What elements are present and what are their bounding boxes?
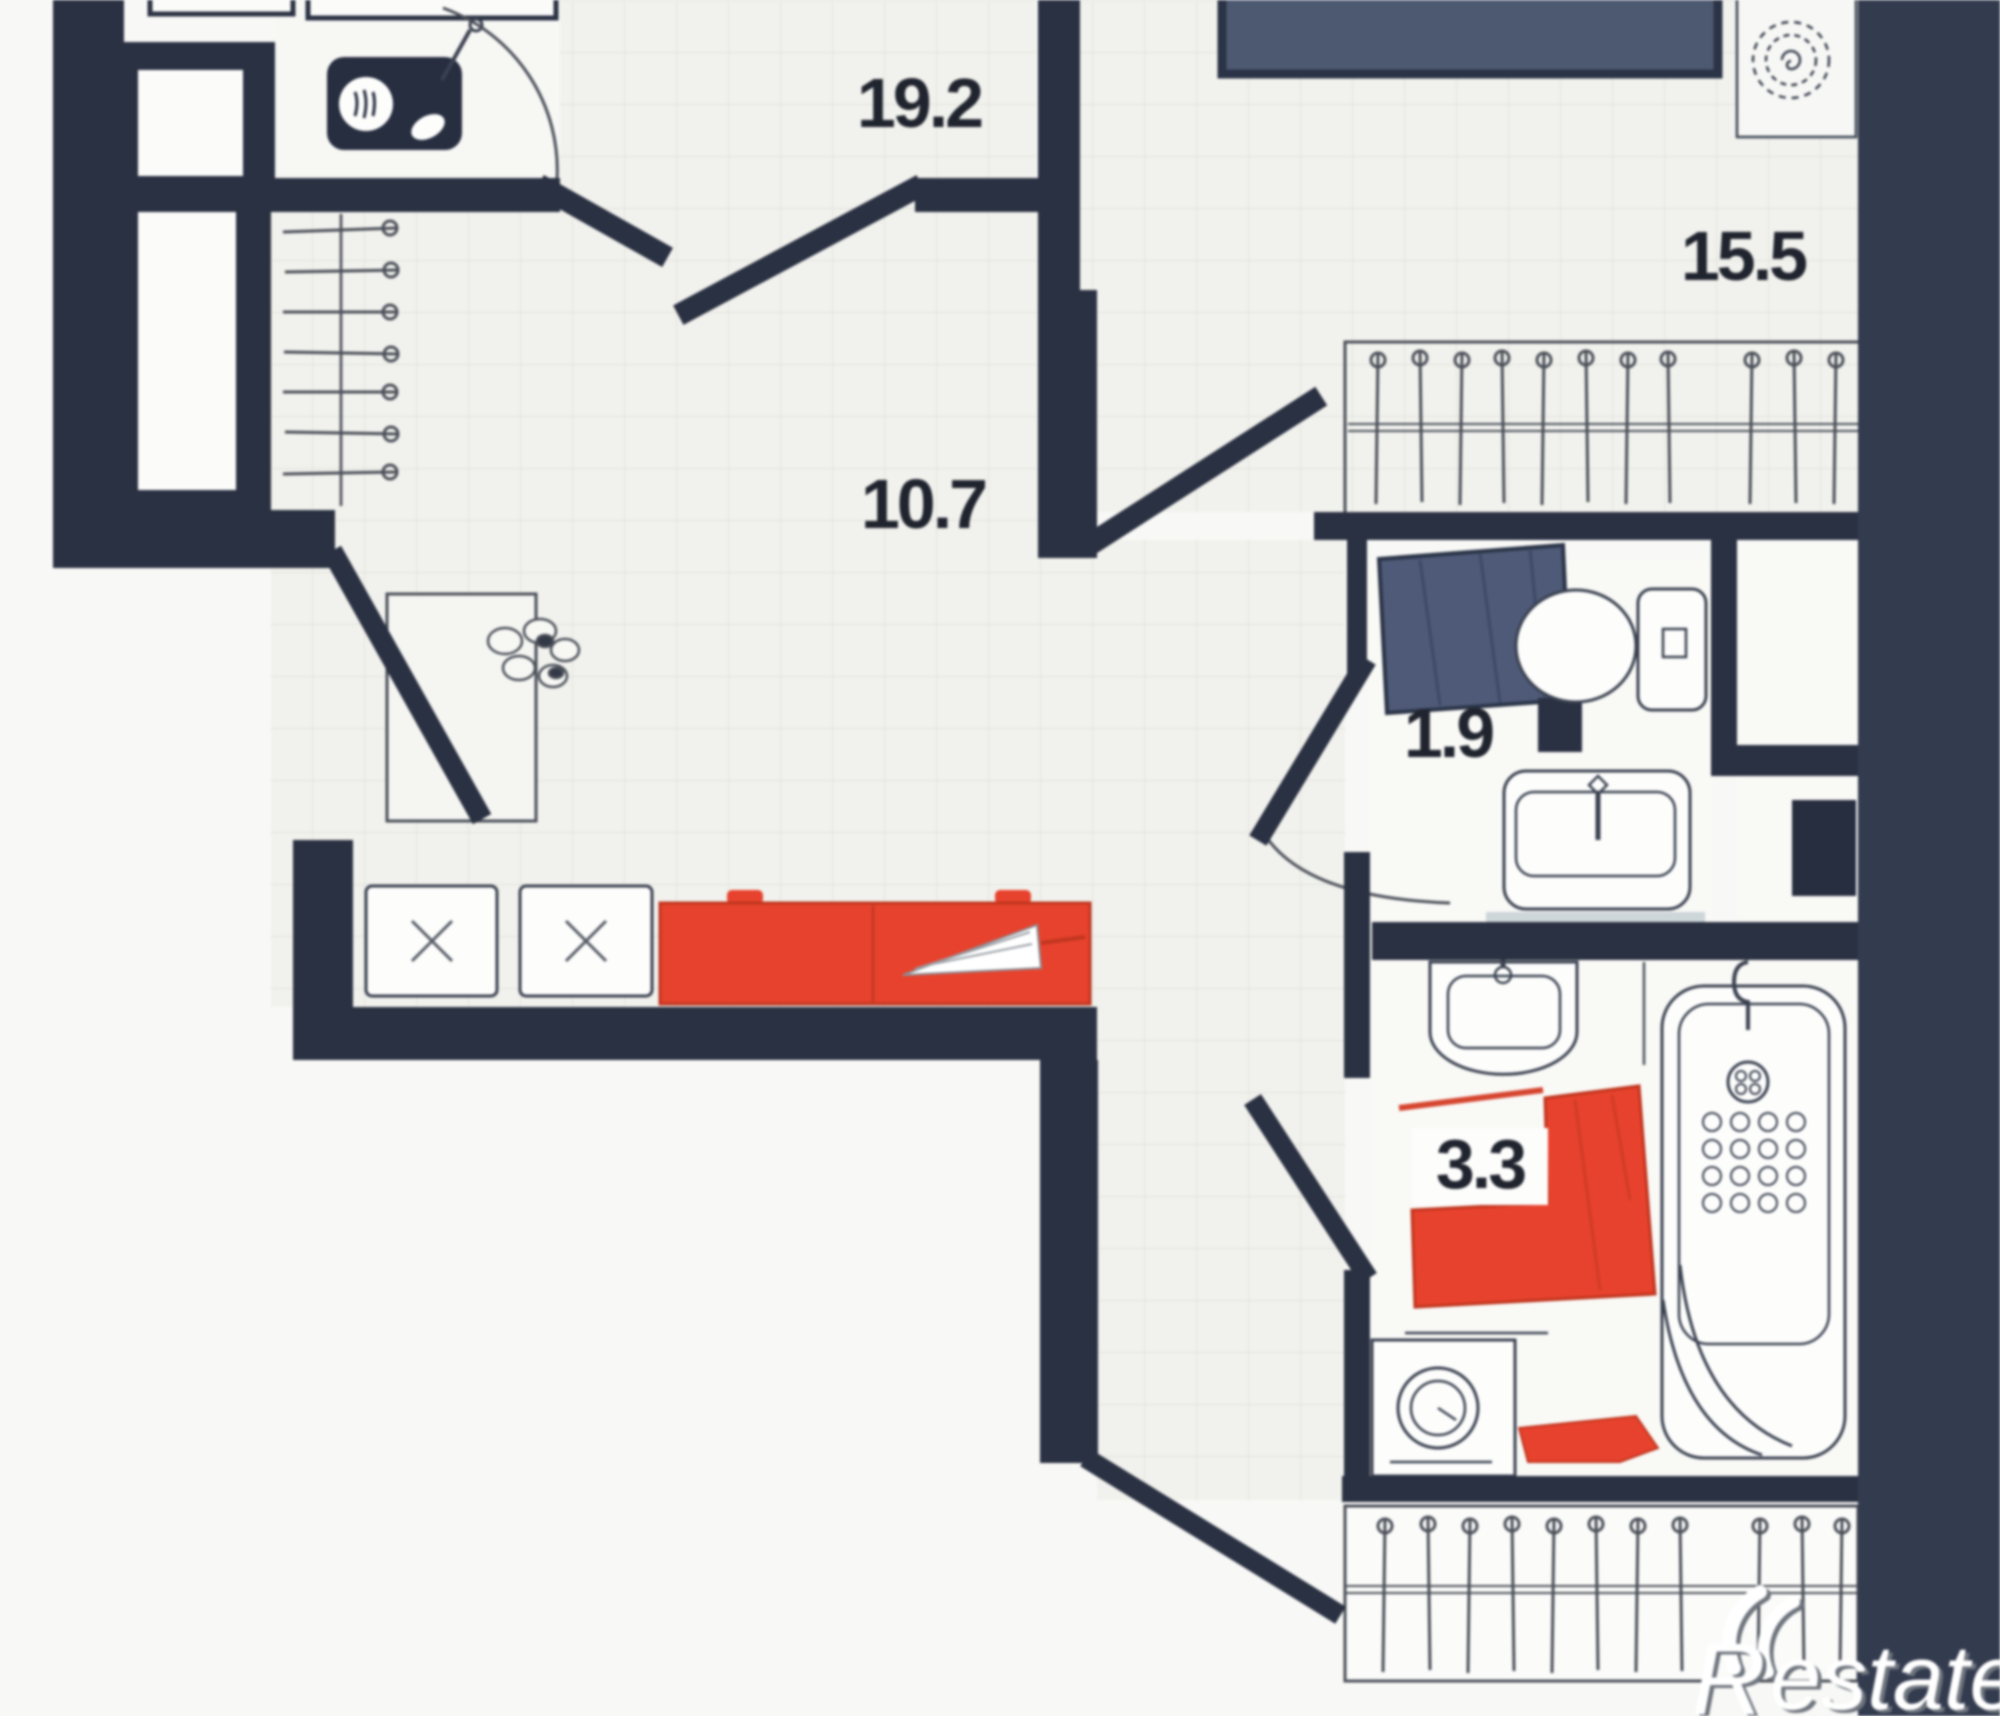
svg-text:3.3: 3.3 [1436,1125,1525,1203]
svg-text:19.2: 19.2 [857,64,982,142]
svg-text:15.5: 15.5 [1681,217,1806,295]
svg-text:1.9: 1.9 [1404,694,1493,772]
svg-text:R: R [1692,1622,1766,1716]
svg-text:estate: estate [1770,1627,2000,1716]
svg-text:10.7: 10.7 [861,465,985,543]
